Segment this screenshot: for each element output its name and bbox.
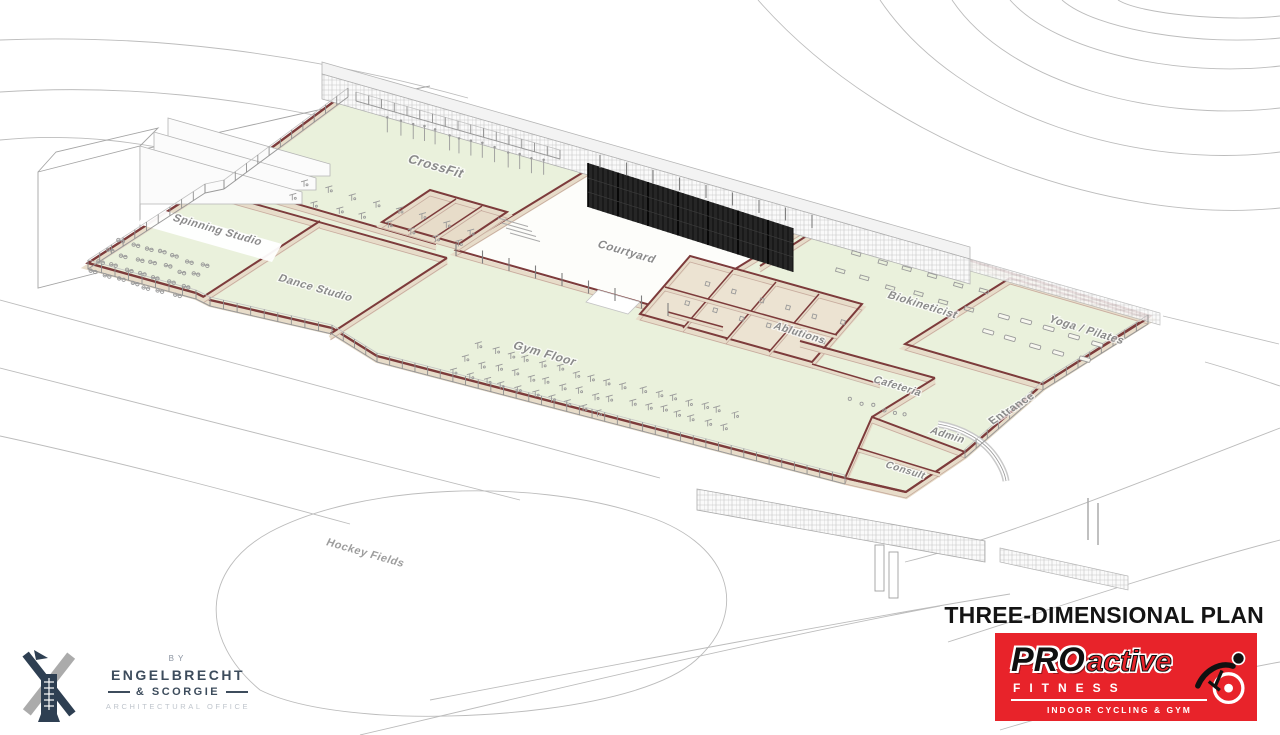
architect-by: BY: [94, 654, 262, 663]
cyclist-icon: [1189, 645, 1255, 707]
architect-name-2-row: & SCORGIE: [94, 686, 262, 698]
architect-name-1: ENGELBRECHT: [94, 667, 262, 683]
proactive-fitness-logo: PROactive FITNESS INDOOR CYCLING & GYM: [995, 633, 1257, 721]
architect-name-2: & SCORGIE: [136, 686, 220, 698]
brand-active-text: active: [1087, 647, 1172, 677]
dash-left: [108, 691, 130, 693]
windmill-icon: [14, 642, 84, 730]
sheet-title: THREE-DIMENSIONAL PLAN: [944, 602, 1264, 629]
hockey-fields-label: Hockey Fields: [324, 537, 407, 570]
architect-logo: BY ENGELBRECHT & SCORGIE ARCHITECTURAL O…: [14, 640, 264, 732]
brand-pro-text: PRO: [1011, 643, 1085, 677]
architect-text: BY ENGELBRECHT & SCORGIE ARCHITECTURAL O…: [94, 654, 262, 711]
brand-divider: [1011, 699, 1207, 701]
architect-subtitle: ARCHITECTURAL OFFICE: [94, 702, 262, 711]
three-dimensional-plan-sheet: CrossFitSpinning StudioDance StudioGym F…: [0, 0, 1280, 735]
dash-right: [226, 691, 248, 693]
